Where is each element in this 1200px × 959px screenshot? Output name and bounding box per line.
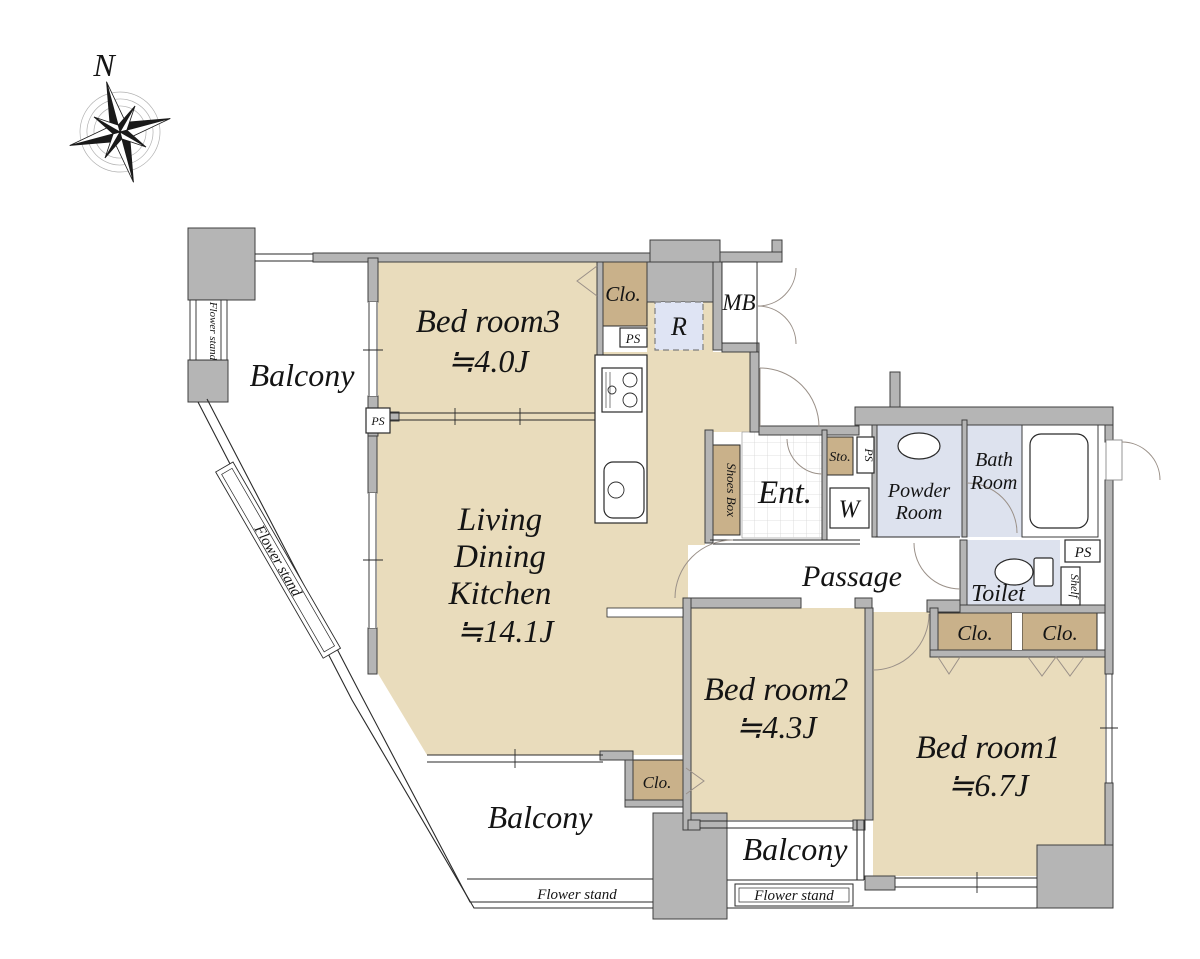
shelf-label: Shelf bbox=[1068, 574, 1082, 600]
closet-bedroom3-label: Clo. bbox=[605, 282, 641, 306]
flower-stand-bottom-center-label: Flower stand bbox=[753, 888, 834, 904]
ldk-beam bbox=[607, 608, 683, 617]
ps-kitchen-label: PS bbox=[625, 331, 641, 346]
storage-label: Sto. bbox=[829, 450, 850, 465]
front-door-arc bbox=[760, 368, 819, 427]
closet-bedroom1-left-label: Clo. bbox=[957, 621, 993, 645]
entrance-label: Ent. bbox=[757, 475, 812, 511]
ldk-line2: Dining bbox=[453, 539, 546, 575]
flower-stand-top-left-label: Flower stand bbox=[207, 301, 219, 361]
meter-box-door-bottom bbox=[758, 306, 796, 344]
refrigerator-label: R bbox=[670, 312, 687, 341]
bath-room-line1: Bath bbox=[975, 449, 1013, 471]
compass-star bbox=[56, 68, 183, 195]
bedroom2-name: Bed room2 bbox=[704, 672, 849, 708]
bedroom1-area: ≒6.7J bbox=[947, 767, 1030, 803]
bathtub bbox=[1030, 434, 1088, 528]
floor-plan-page: N Bed room3 ≒4.0J Living Dinin bbox=[0, 0, 1200, 959]
kitchen-sink bbox=[604, 462, 644, 518]
toilet-door-arc bbox=[914, 543, 960, 589]
toilet-label: Toilet bbox=[971, 581, 1026, 607]
powder-room-line1: Powder bbox=[887, 480, 950, 502]
balcony-top-rail bbox=[255, 254, 313, 261]
closet-bedroom2-label: Clo. bbox=[643, 773, 672, 792]
ps-entrance-label: PS bbox=[862, 447, 876, 461]
balcony-top-left-label: Balcony bbox=[250, 357, 356, 393]
ps-left-label: PS bbox=[370, 414, 384, 428]
compass-north-label: N bbox=[92, 47, 116, 83]
bedroom3-area: ≒4.0J bbox=[447, 343, 530, 379]
meter-box-door-top bbox=[758, 268, 796, 306]
powder-sink bbox=[898, 433, 940, 459]
bedroom1-name: Bed room1 bbox=[916, 730, 1061, 766]
ps-toilet-label: PS bbox=[1074, 545, 1092, 561]
balcony-bottom-center-label: Balcony bbox=[743, 831, 849, 867]
washing-machine-label: W bbox=[839, 496, 862, 523]
bath-room-line2: Room bbox=[970, 472, 1018, 494]
bedroom2-area: ≒4.3J bbox=[735, 709, 818, 745]
block-left-2 bbox=[188, 360, 228, 402]
flower-stand-bottom-left-label: Flower stand bbox=[536, 887, 617, 903]
powder-room-line2: Room bbox=[895, 502, 943, 524]
closet-bedroom1-right-label: Clo. bbox=[1042, 621, 1078, 645]
shoes-box-label: Shoes Box bbox=[724, 463, 739, 517]
ldk-line1: Living bbox=[457, 502, 542, 538]
meter-box-label: MB bbox=[721, 290, 755, 315]
closet-divider bbox=[1012, 613, 1022, 650]
bedroom3-floor bbox=[377, 262, 597, 420]
pillar-bottom-right bbox=[1037, 845, 1113, 908]
stove bbox=[602, 368, 642, 412]
service-door-right bbox=[1106, 440, 1160, 480]
passage-label: Passage bbox=[801, 560, 902, 593]
balcony-bottom-left-label: Balcony bbox=[488, 799, 594, 835]
pillar-top-left bbox=[188, 228, 255, 300]
bedroom3-name: Bed room3 bbox=[416, 304, 561, 340]
floor-plan: N Bed room3 ≒4.0J Living Dinin bbox=[0, 0, 1200, 959]
ldk-line3: Kitchen bbox=[448, 576, 552, 612]
ldk-area: ≒14.1J bbox=[456, 613, 555, 649]
compass: N bbox=[56, 47, 183, 196]
